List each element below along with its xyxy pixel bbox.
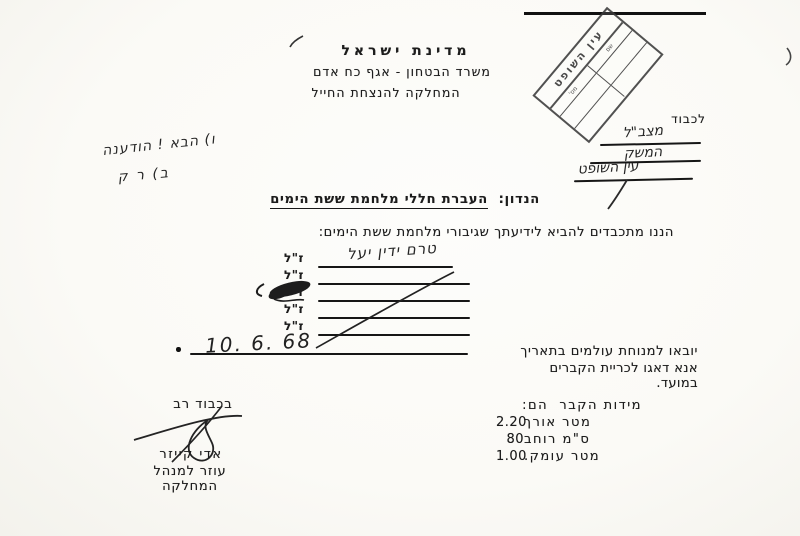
scan-edge-mark	[782, 46, 800, 68]
pen-tick-mark	[286, 33, 308, 51]
kibbutz-receiving-stamp: עין השופט שם מס'	[532, 7, 663, 143]
signer-title: עוזר למנהל המחלקה	[124, 464, 256, 494]
recipient-handwritten-1: מצב"ל	[608, 122, 679, 143]
grave-dimensions-title: מידות הקבר הם:	[502, 398, 642, 413]
subject-text: העברת חללי מלחמת ששת הימים	[270, 192, 488, 209]
recipient-handwritten-3: עין השופט	[562, 158, 655, 179]
sentence-period	[176, 347, 181, 352]
grave-dimension-width: 80 ס"מ רוחב	[496, 432, 599, 447]
dimension-unit: מטר אורך	[524, 415, 591, 430]
dimension-value: 80	[496, 432, 524, 447]
diagonal-crossout-stroke	[308, 264, 460, 356]
scanned-letter-page: מדינת ישראל משרד הבטחון - אגף כח אדם המח…	[0, 0, 800, 536]
letterhead-state: מדינת ישראל	[336, 43, 476, 59]
followup-sentence: אנא דאגו לכריית הקברים במועד.	[518, 361, 698, 391]
margin-note-2: ב) ר ק	[99, 165, 170, 187]
dimension-unit: מטר עומק.	[524, 449, 600, 464]
signer-name: אדי קייזר	[146, 447, 236, 462]
handwritten-fallen-name: טרם ידין יעל	[328, 238, 457, 265]
subject-line: הנדון: העברת חללי מלחמת ששת הימים	[228, 192, 540, 207]
zal-label-1: ז"ל	[284, 251, 304, 265]
dimension-value: 1.00	[496, 449, 524, 464]
pen-descender-stroke	[603, 178, 635, 212]
letterhead-department: המחלקה להנצחת החייל	[306, 85, 466, 100]
grave-dimension-depth: 1.00 מטר עומק.	[496, 449, 609, 464]
date-sentence: יובאו למנוחת עולמים בתאריך	[504, 344, 698, 359]
dimension-value: 2.20	[496, 415, 524, 430]
body-intro: הננו מתכבדים להביא לידיעתך שגיבורי מלחמת…	[264, 225, 674, 240]
subject-label: הנדון:	[499, 192, 540, 207]
grave-dimension-length: 2.20 מטר אורך	[496, 415, 600, 430]
dimension-unit: ס"מ רוחב	[524, 432, 590, 447]
margin-note-1: ו) הבא ! הודענה	[86, 131, 217, 161]
letterhead-ministry: משרד הבטחון - אגף כח אדם	[282, 64, 522, 79]
